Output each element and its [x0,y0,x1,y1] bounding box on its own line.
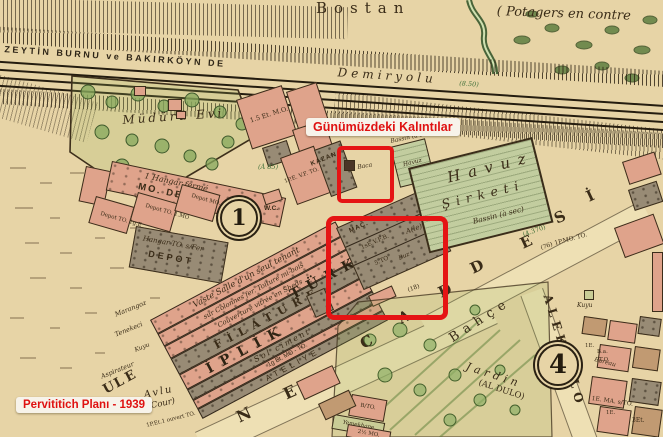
kuyu2-label: Kuyu [577,303,592,309]
a85-label: (À 85) [258,164,278,171]
mo25-label: 2½ MO. [357,430,380,437]
building-right [629,378,662,406]
building-right [628,181,663,211]
et15-label: 1.5 Et. M.O. [249,106,289,124]
wc-label: W.C. [264,206,278,213]
ba-label: B.a. [597,350,608,356]
district-1-number: 1 [231,205,246,231]
garden-outbuilding [134,86,146,96]
highlight-box-small [337,146,394,203]
building-right [632,346,661,371]
railway-level-label: (8.50) [459,80,479,88]
building-right [607,320,638,344]
street-letter-d2: D [468,257,486,276]
depot-word-label: DEPOT [148,250,195,267]
remains-annotation-label: Günümüzdeki Kalıntılar [306,118,460,136]
street-letter-i: İ [584,188,597,205]
plan-annotation-text: Pervititich Planı - 1939 [23,399,145,411]
e1b-label: 1E. [606,411,615,417]
building-right [652,252,663,312]
district-4-number: 4 [549,350,567,380]
building-right [581,316,607,337]
highlight-box-large [326,216,448,320]
et3-label: 3Et. [632,418,645,424]
district-circle-4: 4 [537,344,579,386]
bassin-label: Bassin (à sec) [472,205,525,225]
bostan-label: Bostan [316,1,410,16]
b-to-label: B/TO. [360,404,376,412]
to-label: T.O. [599,358,610,364]
district-circle-1: 1 [220,199,258,237]
e1a-label: 1E. [585,344,594,350]
plan-annotation-label: Pervititich Planı - 1939 [16,397,152,413]
garden-outbuilding [168,99,182,111]
building-right [637,316,661,337]
building-kiosk [584,290,594,300]
pervititch-map: Bostan ( Potagers en contre ZEYTİN BURNU… [0,0,663,437]
remains-annotation-text: Günümüzdeki Kalıntılar [313,120,453,134]
garden-outbuilding [176,111,186,119]
street-letter-s: S [552,208,568,226]
